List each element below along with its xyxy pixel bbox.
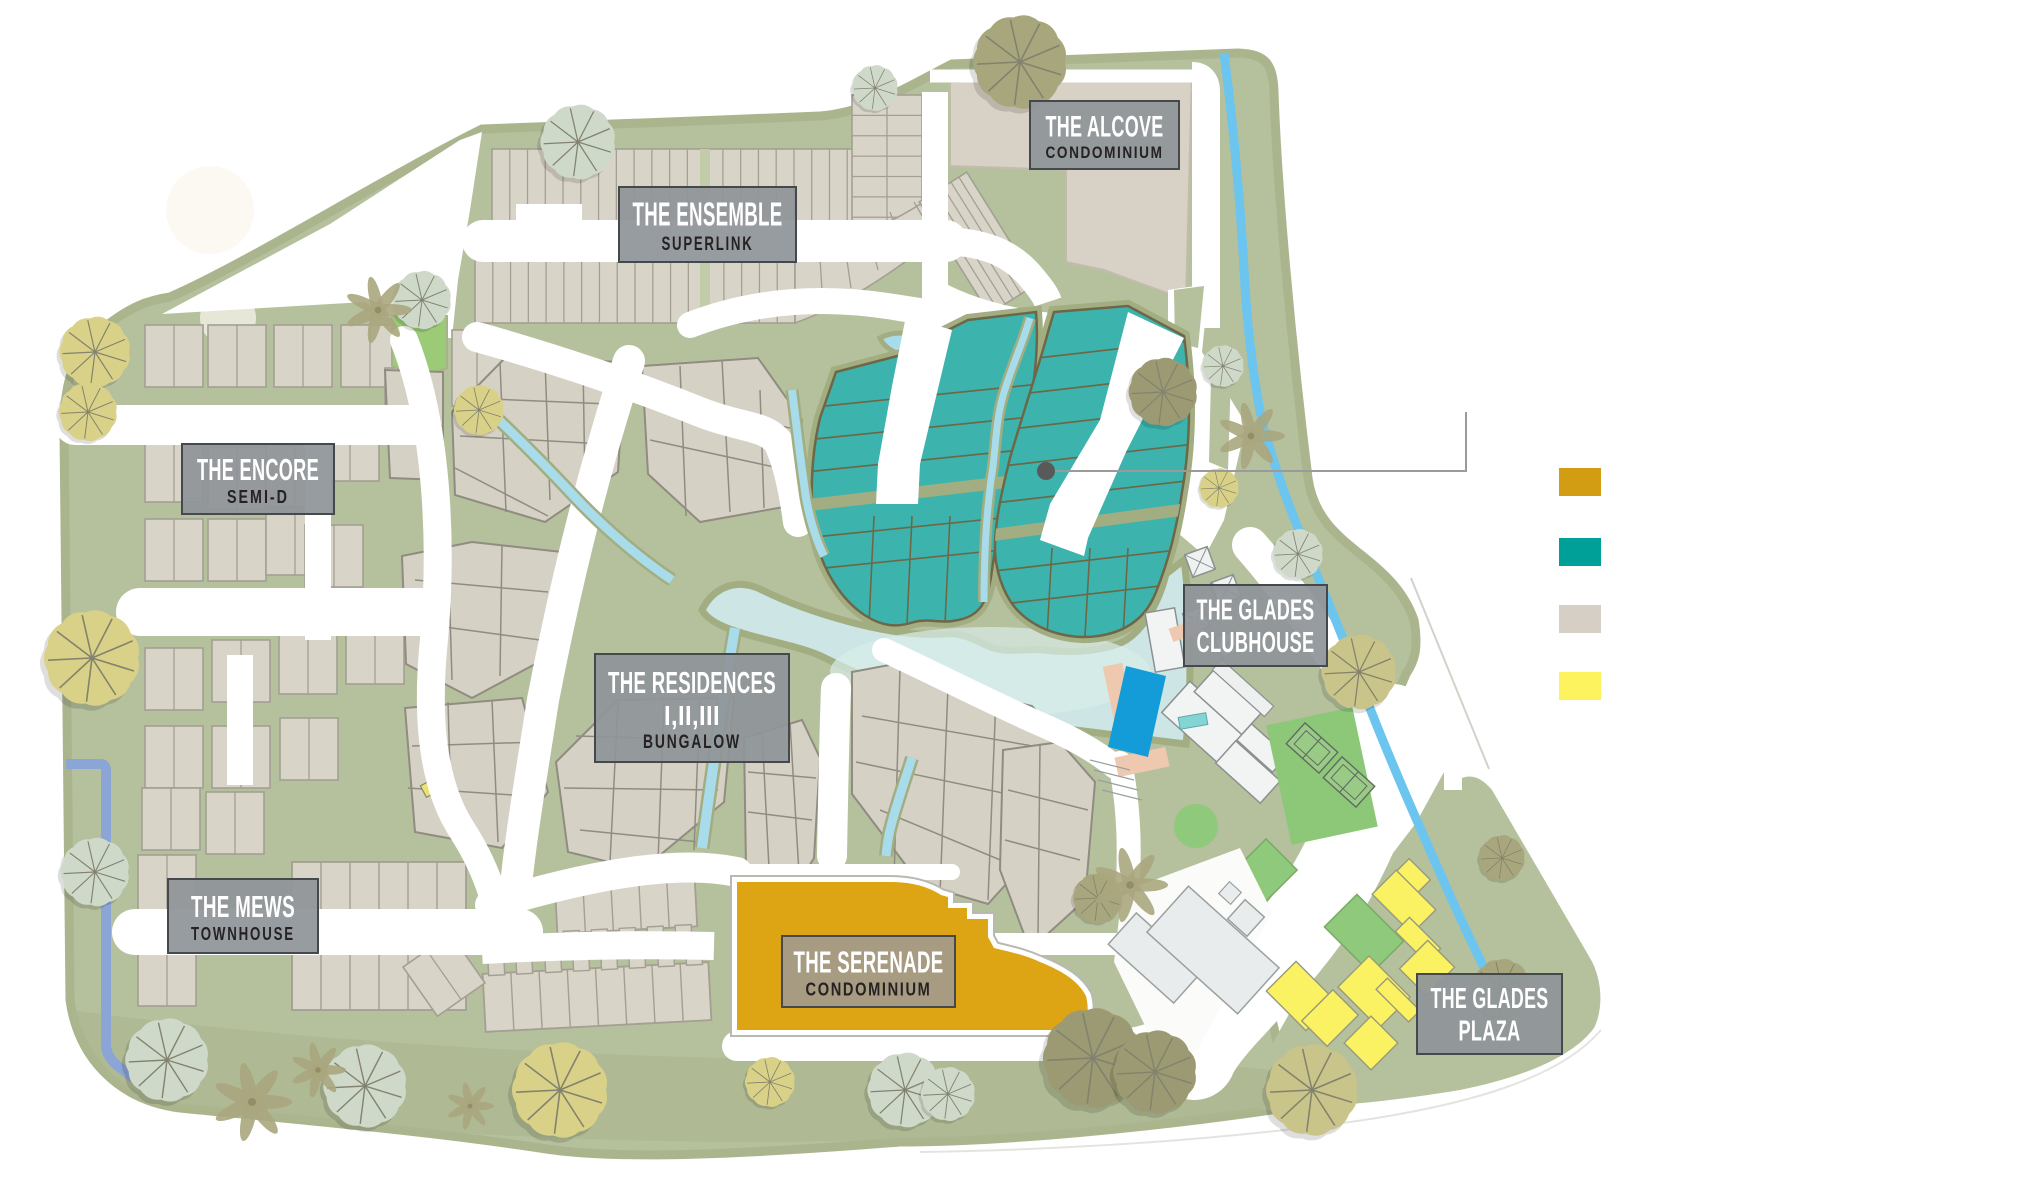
svg-text:PLAZA: PLAZA: [1459, 1016, 1521, 1048]
svg-text:CONDOMINIUM: CONDOMINIUM: [1046, 143, 1164, 162]
svg-text:THE SERENADE: THE SERENADE: [794, 945, 944, 980]
svg-text:CLUBHOUSE: CLUBHOUSE: [1197, 627, 1315, 659]
svg-text:THE RESIDENCES: THE RESIDENCES: [608, 665, 776, 700]
svg-text:THE ALCOVE: THE ALCOVE: [1046, 110, 1164, 143]
svg-text:BUNGALOW: BUNGALOW: [643, 732, 741, 753]
svg-text:SEMI-D: SEMI-D: [227, 487, 289, 507]
svg-text:TOWNHOUSE: TOWNHOUSE: [191, 924, 295, 944]
svg-text:THE GLADES: THE GLADES: [1431, 983, 1549, 1015]
svg-text:THE ENSEMBLE: THE ENSEMBLE: [633, 196, 783, 233]
svg-text:I,II,III: I,II,III: [664, 700, 720, 731]
svg-text:THE ENCORE: THE ENCORE: [197, 452, 319, 487]
svg-text:CONDOMINIUM: CONDOMINIUM: [806, 979, 932, 999]
svg-text:SUPERLINK: SUPERLINK: [662, 234, 754, 255]
svg-text:THE GLADES: THE GLADES: [1197, 595, 1315, 627]
svg-text:THE MEWS: THE MEWS: [191, 889, 295, 924]
